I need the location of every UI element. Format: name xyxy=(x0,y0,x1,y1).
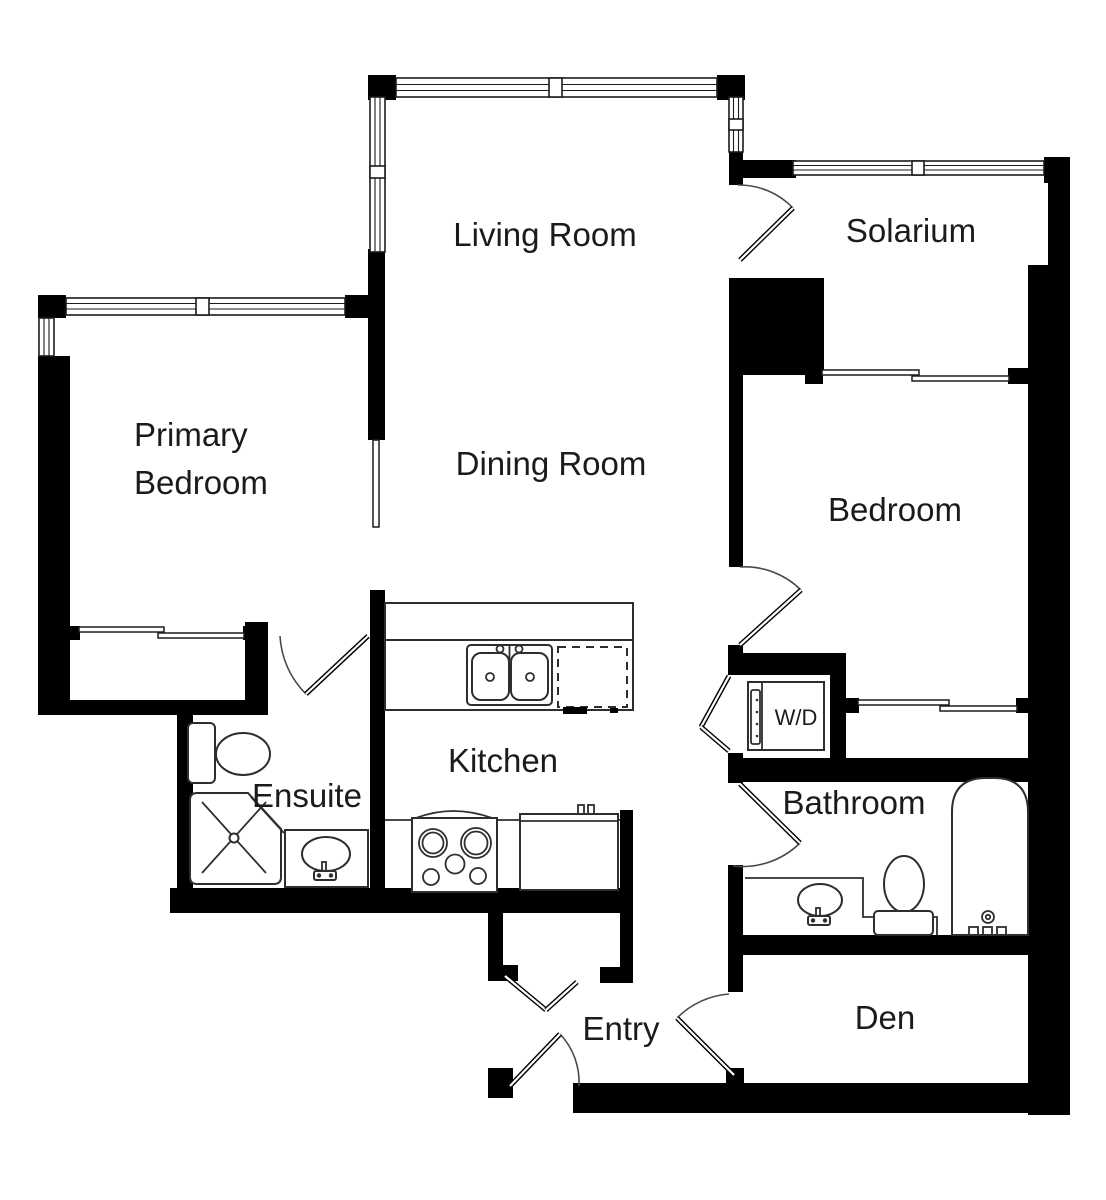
primary-bedroom-window xyxy=(66,298,345,315)
living-room-right-window xyxy=(729,97,743,152)
room-label-living-room: Living Room xyxy=(453,216,636,253)
bathroom-toilet xyxy=(874,856,933,935)
room-label-dining-room: Dining Room xyxy=(456,445,647,482)
solarium-bedroom-sliding-door xyxy=(822,370,1009,381)
room-label-kitchen: Kitchen xyxy=(448,742,558,779)
room-label-den: Den xyxy=(855,999,916,1036)
refrigerator xyxy=(520,805,618,890)
laundry-closet-doors xyxy=(701,676,729,751)
entry-door xyxy=(510,1034,579,1086)
room-label-primary-bedroom-line2: Bedroom xyxy=(134,464,268,501)
bedroom-door xyxy=(740,567,801,645)
bathtub xyxy=(952,778,1028,935)
room-label-solarium: Solarium xyxy=(846,212,976,249)
ensuite-vanity-sink xyxy=(285,830,368,887)
den-door xyxy=(677,994,734,1075)
room-label-laundry: W/D xyxy=(775,705,818,730)
kitchen-counter-bar xyxy=(385,603,633,640)
kitchen-sink xyxy=(467,645,552,705)
bathroom-sink xyxy=(798,884,842,925)
room-label-entry: Entry xyxy=(582,1010,660,1047)
living-room-side-window xyxy=(370,97,385,252)
primary-closet-sliding-door xyxy=(79,627,244,638)
floor-plan: Living Room Solarium Primary Bedroom Din… xyxy=(0,0,1106,1200)
room-label-bedroom: Bedroom xyxy=(828,491,962,528)
floor-plan-page: Living Room Solarium Primary Bedroom Din… xyxy=(0,0,1106,1200)
room-label-bathroom: Bathroom xyxy=(782,784,925,821)
primary-bedroom-side-window xyxy=(39,318,54,356)
solarium-window xyxy=(793,161,1044,175)
room-label-primary-bedroom-line1: Primary xyxy=(134,416,248,453)
entry-closet-doors xyxy=(505,976,577,1010)
stove xyxy=(412,811,497,892)
bedroom-closet-sliding-door xyxy=(858,700,1017,711)
living-room-window xyxy=(396,78,717,97)
solarium-door xyxy=(738,185,793,260)
room-label-ensuite: Ensuite xyxy=(252,777,362,814)
primary-bedroom-door xyxy=(280,636,368,694)
dining-pocket-door xyxy=(373,440,379,527)
ensuite-toilet xyxy=(188,723,270,783)
